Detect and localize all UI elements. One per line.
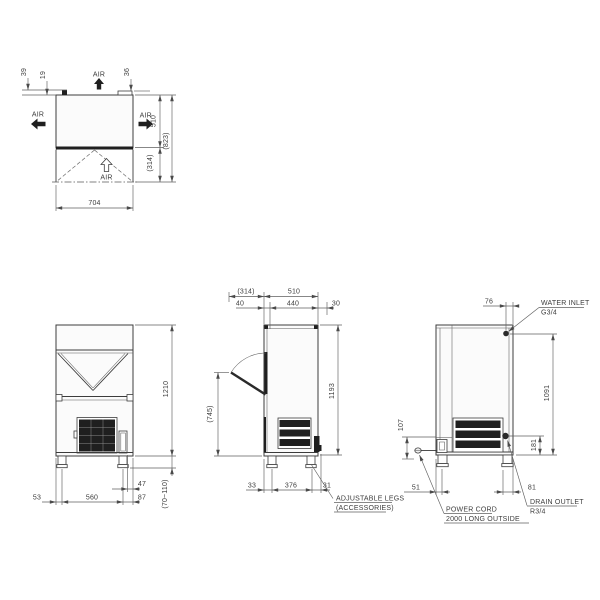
rear-view — [415, 325, 513, 467]
dim-87: 87 — [138, 495, 146, 502]
dim-314-top: (314) — [147, 154, 154, 171]
side-view — [231, 325, 322, 468]
dim-376: 376 — [285, 483, 297, 490]
top-tab — [118, 91, 132, 95]
front-right-leg — [118, 456, 128, 468]
note-power-cord-length: 2000 LONG OUTSIDE — [446, 516, 520, 523]
door-swing-arc — [231, 353, 266, 373]
front-left-leg — [57, 456, 67, 468]
dim-39: 39 — [21, 68, 28, 76]
front-view — [56, 325, 133, 468]
note-drain-outlet: DRAIN OUTLET — [530, 499, 584, 506]
air-label-front: AIR — [100, 175, 112, 182]
side-vent-grille — [278, 418, 311, 449]
air-intake-up-icon — [101, 159, 112, 172]
dim-70-110: (70~110) — [162, 479, 169, 508]
dim-314-side: (314) — [237, 289, 254, 296]
dim-76: 76 — [485, 299, 493, 306]
dim-47: 47 — [138, 481, 146, 488]
dim-31: 31 — [323, 483, 331, 490]
side-door-open — [231, 373, 266, 395]
dim-560: 560 — [86, 495, 98, 502]
hinge-pin-icon — [62, 90, 67, 95]
dim-1091: 1091 — [544, 385, 551, 401]
side-front-leg — [267, 456, 277, 468]
top-view: AIR AIR AIR AIR — [31, 72, 153, 183]
side-front-louver — [264, 417, 267, 453]
air-label-top: AIR — [93, 72, 105, 79]
drain-outlet-icon — [502, 433, 508, 439]
rear-right-leg — [502, 455, 513, 467]
note-drain-outlet-size: R3/4 — [530, 509, 546, 516]
front-side-panel — [119, 431, 127, 453]
dim-1193: 1193 — [329, 383, 336, 399]
note-accessories: (ACCESSORIES) — [336, 505, 394, 512]
air-label-left: AIR — [32, 112, 44, 119]
dim-510-side: 510 — [288, 289, 300, 296]
air-flow-left-icon — [31, 119, 46, 130]
dim-823-top: (823) — [163, 132, 170, 149]
rear-left-leg — [437, 455, 448, 467]
front-condenser-grille — [74, 418, 117, 454]
dim-30: 30 — [332, 301, 340, 308]
dim-510-top: 510 — [151, 115, 158, 127]
dim-51: 51 — [412, 485, 420, 492]
note-water-inlet: WATER INLET — [541, 300, 590, 307]
dim-181: 181 — [531, 439, 538, 451]
dim-33: 33 — [248, 483, 256, 490]
dim-53: 53 — [33, 495, 41, 502]
technical-drawing-page: AIR AIR AIR AIR 39 19 36 510 (314) (823) — [0, 0, 600, 600]
note-power-cord: POWER CORD — [446, 507, 497, 514]
side-rear-leg — [306, 456, 316, 468]
dim-1210: 1210 — [163, 381, 170, 397]
technical-drawing: AIR AIR AIR AIR 39 19 36 510 (314) (823) — [0, 0, 600, 600]
dim-40: 40 — [236, 301, 244, 308]
dim-36: 36 — [124, 68, 131, 76]
dim-81: 81 — [528, 485, 536, 492]
dim-19: 19 — [40, 71, 47, 79]
note-water-inlet-size: G3/4 — [541, 310, 557, 317]
dim-704: 704 — [88, 200, 100, 207]
dim-745: (745) — [207, 405, 214, 422]
rear-condenser-grille — [453, 418, 503, 452]
note-adjustable-legs: ADJUSTABLE LEGS — [336, 496, 404, 503]
dim-107: 107 — [398, 419, 405, 431]
water-inlet-icon — [503, 331, 509, 337]
dim-440: 440 — [287, 301, 299, 308]
top-view-body — [56, 95, 133, 148]
power-cord — [415, 440, 447, 454]
top-view-divider — [56, 147, 133, 150]
air-flow-up-icon — [94, 78, 104, 90]
side-door-closed — [265, 352, 268, 394]
